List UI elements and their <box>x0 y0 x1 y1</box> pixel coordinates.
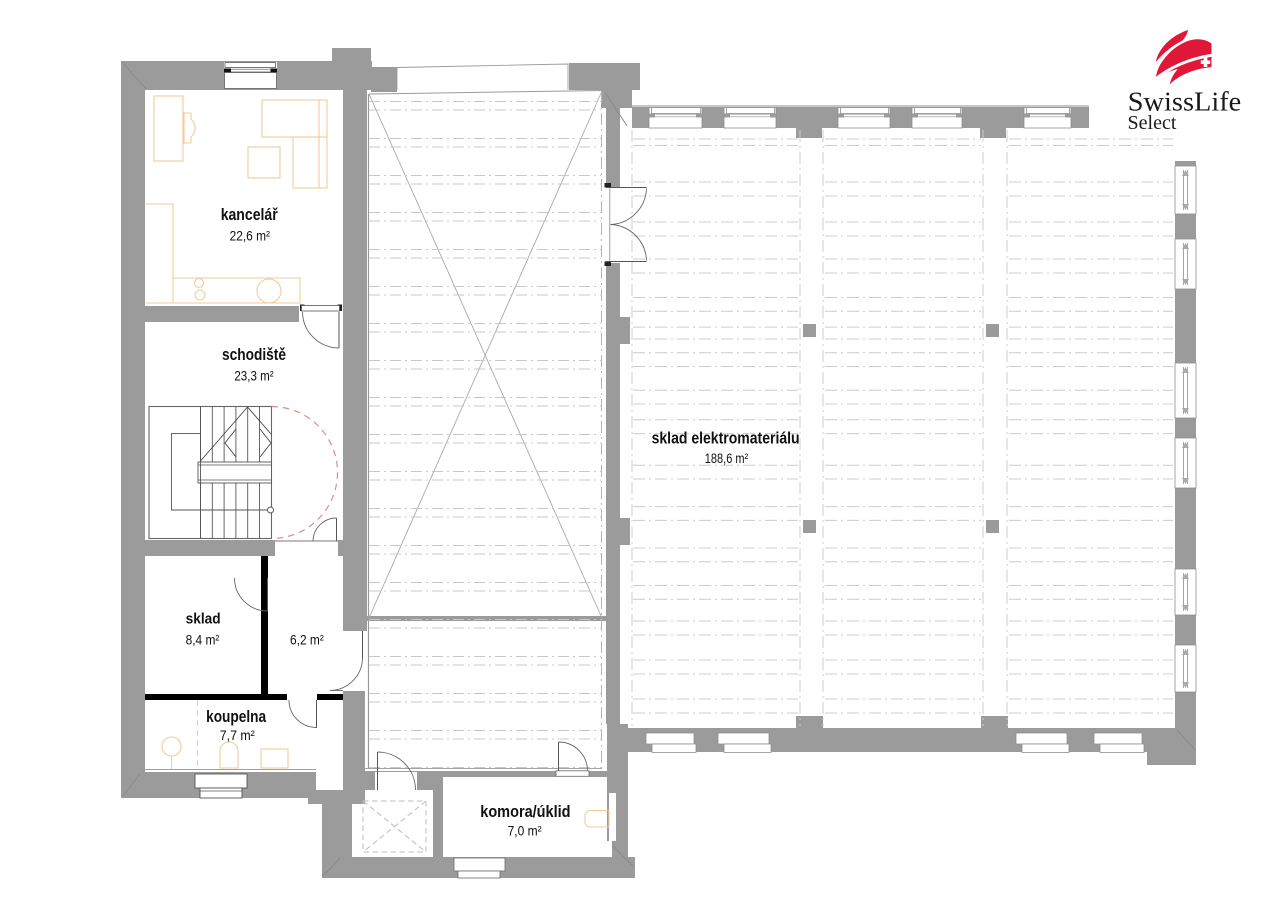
svg-text:komora/úklid: komora/úklid <box>480 802 570 821</box>
svg-text:6,2 m²: 6,2 m² <box>290 631 324 647</box>
svg-text:schodiště: schodiště <box>222 345 286 364</box>
svg-text:23,3 m²: 23,3 m² <box>234 367 274 383</box>
svg-text:22,6 m²: 22,6 m² <box>230 228 271 244</box>
svg-text:7,0 m²: 7,0 m² <box>508 823 542 839</box>
svg-text:Select: Select <box>1128 113 1178 134</box>
svg-text:kancelář: kancelář <box>221 205 278 224</box>
svg-text:188,6 m²: 188,6 m² <box>705 450 749 466</box>
svg-text:8,4 m²: 8,4 m² <box>186 631 220 647</box>
svg-text:sklad: sklad <box>186 611 221 628</box>
svg-text:koupelna: koupelna <box>206 707 266 726</box>
svg-text:7,7 m²: 7,7 m² <box>220 727 255 743</box>
svg-text:SwissLife: SwissLife <box>1128 87 1242 117</box>
svg-text:sklad elektromateriálu: sklad elektromateriálu <box>652 430 800 448</box>
